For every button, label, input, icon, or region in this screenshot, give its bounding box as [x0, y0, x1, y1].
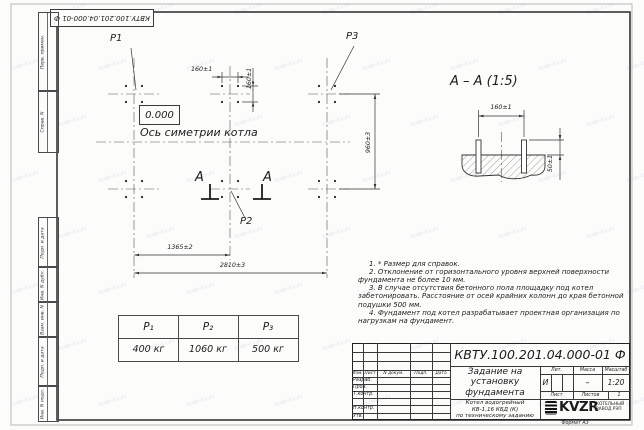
divider: [352, 352, 450, 353]
drawing-title: Задание на установку фундамента: [452, 367, 538, 398]
divider: [432, 343, 433, 420]
dim-1365-label: 1365±2: [155, 244, 205, 251]
frame-col-label: Взам. инв. N: [41, 305, 46, 335]
frame-col-podp-data-2: Подп. и дата: [38, 336, 59, 387]
drawing-subtitle-line2: КВ-1,16 КБД (К): [450, 407, 540, 413]
drawing-sheet: kotel-kv.kzkotel-kv.kzkotel-kv.kzkotel-k…: [0, 0, 644, 430]
frame-col-vzam-inv: Взам. инв. N: [38, 301, 59, 338]
frame-col-label: Справ. N: [41, 111, 46, 132]
load-point-p3-label: P3: [346, 31, 358, 42]
drawing-subtitle-line3: по техническому заданию: [450, 413, 540, 419]
section-letter-right: А: [263, 170, 272, 185]
frame-col-label: Инв. N подл.: [41, 388, 46, 418]
section-view-title: А – А (1:5): [450, 74, 518, 89]
divider: [47, 13, 48, 91]
loads-table-value-p1: 400 кг: [119, 338, 178, 361]
note-4: 4. Фундамент под котел разрабатывает про…: [358, 309, 632, 325]
top-stamp-text: КВТУ.100.201.04.000-01 Ф: [54, 14, 150, 22]
utv-label: Утв.: [353, 414, 363, 419]
nkontr-label: Н.контр.: [353, 406, 374, 411]
data-header: Дата: [432, 370, 450, 377]
divider: [551, 374, 552, 391]
loads-table: P₁ P₂ P₃ 400 кг 1060 кг 500 кг: [118, 315, 299, 362]
dim-2810-label: 2810±3: [205, 262, 260, 269]
lit-value: И: [540, 374, 551, 391]
anchor-bolt-section-right: [522, 140, 527, 173]
prov-label: Пров.: [353, 385, 367, 390]
frame-col-label: Подп. и дата: [41, 346, 46, 377]
divider: [47, 337, 48, 386]
frame-col-inv-podl: Инв. N подл.: [38, 385, 59, 422]
lit-header: Лит.: [540, 366, 573, 374]
razrab-label: Разраб.: [353, 378, 372, 383]
sheet-label: Лист: [540, 391, 573, 399]
loads-table-header-p1: P₁: [119, 316, 178, 338]
divider: [47, 267, 48, 302]
divider: [377, 343, 378, 420]
dim-text: 50±1: [547, 154, 554, 171]
mass-value: –: [573, 374, 602, 391]
dim-960-label: 960±3: [351, 137, 387, 147]
dim-160-vertical-label: 160±1: [232, 73, 268, 83]
section-cut-marks: [201, 184, 271, 199]
sheets-label: Листов: [573, 391, 608, 399]
scale-value: 1:20: [602, 374, 630, 391]
boiler-symmetry-axis-label: Ось симетрии котла: [140, 126, 258, 139]
loads-table-header-p3: P₃: [238, 316, 298, 338]
ndocum-header: N докум.: [377, 370, 410, 377]
loads-table-header-p2: P₂: [178, 316, 238, 338]
sheets-value: 1: [608, 391, 630, 399]
note-3: 3. В случае отсутствия бетонного пола пл…: [358, 284, 632, 308]
frame-col-sprav-n: Справ. N: [38, 90, 59, 153]
kvzr-logo-icon: [545, 401, 557, 415]
top-stamp-box: КВТУ.100.201.04.000-01 Ф: [50, 9, 154, 27]
divider: [352, 361, 450, 362]
divider: [47, 302, 48, 337]
notes-block: 1. * Размер для справок. 2. Отклонение о…: [358, 260, 632, 325]
podp-header: Подп.: [410, 370, 432, 377]
divider: [47, 218, 48, 267]
load-point-p2-label: P2: [240, 216, 252, 227]
frame-col-inv-dubl: Инв. N дубл.: [38, 266, 59, 303]
note-2: 2. Отклонение от горизонтального уровня …: [358, 268, 632, 284]
mass-header: Масса: [573, 366, 602, 374]
divider: [47, 386, 48, 421]
anchor-bolts-plan: [125, 85, 336, 198]
frame-col-label: Перв. примен.: [41, 35, 46, 70]
divider: [352, 398, 450, 399]
section-dim-160-label: 160±1: [478, 104, 524, 111]
load-point-p1-label: P1: [110, 33, 122, 44]
kvzr-logo-text: KVZR: [559, 399, 598, 415]
frame-col-podp-data-1: Подп. и дата: [38, 217, 59, 268]
loads-table-value-p2: 1060 кг: [178, 338, 238, 361]
divider: [352, 413, 450, 414]
kvzr-logo-caption: КОТЕЛЬНЫЙ ЗАВОД РЭП: [596, 402, 630, 412]
divider: [47, 91, 48, 152]
dim-text: 160±1: [247, 67, 254, 88]
note-1: 1. * Размер для справок.: [358, 260, 632, 268]
drawing-subtitle-line1: Котел водогрейный: [450, 400, 540, 406]
anchor-bolt-section-left: [476, 140, 481, 173]
frame-col-label: Инв. N дубл.: [41, 269, 46, 299]
scale-header: Масштаб: [602, 366, 630, 374]
section-letter-left: А: [195, 170, 204, 185]
loads-table-value-p3: 500 кг: [238, 338, 298, 361]
dim-160-horizontal-label: 160±1: [191, 66, 212, 73]
list-header: Лист: [363, 370, 377, 377]
divider: [562, 374, 563, 391]
divider: [410, 343, 411, 420]
frame-col-perv-primen: Перв. примен.: [38, 12, 59, 92]
dim-text: 960±3: [366, 131, 373, 152]
doc-number: КВТУ.100.201.04.000-01 Ф: [450, 343, 630, 366]
section-dim-50-label: 50±1: [533, 158, 569, 168]
izm-header: Изм.: [352, 370, 363, 377]
elevation-mark: 0.000: [139, 105, 180, 125]
frame-col-label: Подп. и дата: [41, 227, 46, 258]
format-label: Формат А3: [545, 421, 605, 426]
tkontr-label: Т.контр.: [353, 392, 374, 397]
